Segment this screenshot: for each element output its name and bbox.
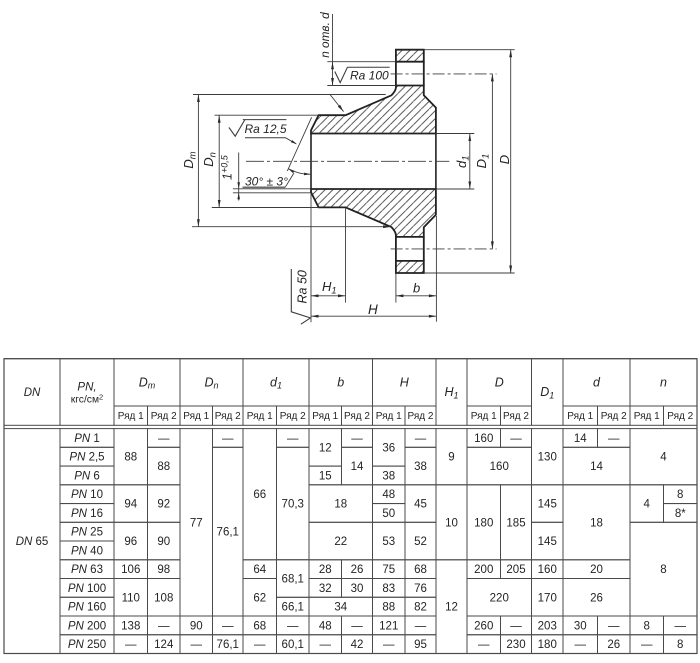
svg-text:кгс/см2: кгс/см2 [71, 393, 103, 406]
svg-text:26: 26 [351, 564, 364, 576]
svg-text:26: 26 [607, 639, 620, 651]
svg-text:D: D [495, 375, 504, 389]
svg-text:68: 68 [414, 564, 427, 576]
svg-text:—: — [510, 433, 522, 445]
svg-text:90: 90 [157, 536, 170, 548]
svg-text:—: — [675, 620, 687, 632]
svg-text:Ряд 2: Ряд 2 [280, 411, 306, 422]
svg-text:18: 18 [334, 499, 347, 511]
svg-text:8: 8 [677, 639, 683, 651]
svg-text:Ряд 2: Ряд 2 [344, 411, 370, 422]
svg-text:108: 108 [154, 592, 173, 604]
svg-text:PN 160: PN 160 [68, 602, 106, 614]
svg-text:52: 52 [414, 536, 427, 548]
svg-text:DN 65: DN 65 [16, 536, 49, 548]
svg-text:—: — [222, 620, 234, 632]
svg-text:10: 10 [445, 517, 458, 529]
svg-text:—: — [478, 639, 490, 651]
svg-text:—: — [608, 620, 620, 632]
svg-text:36: 36 [382, 442, 395, 454]
svg-text:121: 121 [379, 620, 398, 632]
svg-text:Ряд 1: Ряд 1 [183, 411, 209, 422]
svg-text:—: — [415, 620, 427, 632]
svg-text:14: 14 [574, 433, 587, 445]
svg-text:Ряд 2: Ряд 2 [408, 411, 434, 422]
svg-text:PN 6: PN 6 [74, 471, 100, 483]
svg-text:160: 160 [538, 564, 557, 576]
svg-text:66,1: 66,1 [282, 602, 304, 614]
svg-text:8*: 8* [675, 508, 686, 520]
svg-text:48: 48 [319, 620, 332, 632]
svg-text:n отв. d: n отв. d [318, 12, 332, 58]
svg-text:38: 38 [382, 470, 395, 482]
svg-text:PN 40: PN 40 [71, 545, 103, 557]
svg-text:220: 220 [490, 592, 509, 604]
svg-text:—: — [158, 620, 170, 632]
svg-text:145: 145 [538, 536, 557, 548]
svg-text:96: 96 [124, 536, 137, 548]
svg-text:180: 180 [538, 639, 557, 651]
svg-text:160: 160 [490, 461, 509, 473]
svg-text:66: 66 [253, 489, 266, 501]
svg-text:D: D [497, 155, 512, 164]
svg-text:76: 76 [414, 583, 427, 595]
svg-text:DN: DN [24, 387, 41, 399]
svg-text:PN 10: PN 10 [71, 489, 103, 501]
svg-text:—: — [608, 433, 620, 445]
svg-text:170: 170 [538, 592, 557, 604]
svg-text:12: 12 [319, 442, 332, 454]
svg-text:70,3: 70,3 [282, 499, 304, 511]
svg-text:—: — [383, 639, 395, 651]
svg-text:200: 200 [474, 564, 493, 576]
svg-text:d: d [593, 375, 601, 389]
svg-text:48: 48 [382, 489, 395, 501]
svg-text:22: 22 [334, 536, 347, 548]
svg-text:—: — [125, 639, 137, 651]
svg-text:26: 26 [590, 592, 603, 604]
svg-text:64: 64 [253, 564, 266, 576]
svg-text:83: 83 [382, 583, 395, 595]
svg-text:9: 9 [448, 452, 454, 464]
svg-text:88: 88 [157, 461, 170, 473]
svg-text:75: 75 [382, 564, 395, 576]
svg-text:145: 145 [538, 499, 557, 511]
svg-text:42: 42 [351, 639, 364, 651]
svg-text:Ra 12,5: Ra 12,5 [245, 122, 287, 136]
svg-text:8: 8 [644, 620, 650, 632]
svg-text:PN 63: PN 63 [71, 564, 103, 576]
svg-text:—: — [415, 433, 427, 445]
svg-text:68: 68 [253, 620, 266, 632]
svg-text:—: — [254, 639, 266, 651]
svg-text:4: 4 [660, 452, 667, 464]
svg-text:60,1: 60,1 [282, 639, 304, 651]
svg-text:Ряд 1: Ряд 1 [634, 411, 660, 422]
svg-text:b: b [413, 281, 420, 296]
svg-text:8: 8 [660, 564, 666, 576]
svg-text:50: 50 [382, 508, 395, 520]
svg-text:180: 180 [474, 517, 493, 529]
svg-text:38: 38 [414, 461, 427, 473]
svg-text:—: — [641, 639, 653, 651]
svg-text:94: 94 [124, 499, 137, 511]
svg-text:14: 14 [590, 461, 603, 473]
svg-text:92: 92 [157, 499, 170, 511]
svg-text:PN 100: PN 100 [68, 583, 106, 595]
svg-text:n: n [660, 375, 667, 389]
svg-text:Ряд 1: Ряд 1 [312, 411, 338, 422]
svg-text:8: 8 [677, 489, 683, 501]
svg-text:Ряд 2: Ряд 2 [601, 411, 627, 422]
svg-text:30: 30 [574, 620, 587, 632]
svg-text:Ra 50: Ra 50 [296, 270, 310, 303]
svg-text:PN 16: PN 16 [71, 508, 103, 520]
svg-text:76,1: 76,1 [217, 527, 239, 539]
svg-text:—: — [191, 639, 203, 651]
svg-text:18: 18 [590, 517, 603, 529]
svg-text:—: — [320, 639, 332, 651]
svg-text:b: b [337, 375, 344, 389]
svg-text:Ряд 1: Ряд 1 [567, 411, 593, 422]
svg-text:20: 20 [590, 564, 603, 576]
svg-text:PN 250: PN 250 [68, 639, 106, 651]
svg-text:62: 62 [253, 592, 266, 604]
svg-text:PN 25: PN 25 [71, 527, 103, 539]
svg-text:14: 14 [351, 461, 364, 473]
svg-text:30° ± 3°: 30° ± 3° [245, 175, 288, 189]
svg-text:—: — [222, 433, 234, 445]
svg-text:28: 28 [319, 564, 332, 576]
svg-text:Ra 100: Ra 100 [350, 68, 389, 82]
svg-text:30: 30 [351, 583, 364, 595]
svg-text:110: 110 [122, 592, 140, 604]
svg-text:90: 90 [190, 620, 203, 632]
svg-text:—: — [351, 620, 363, 632]
svg-text:H: H [400, 375, 410, 389]
svg-text:Ряд 1: Ряд 1 [118, 411, 144, 422]
svg-text:—: — [287, 433, 299, 445]
svg-text:4: 4 [644, 499, 651, 511]
svg-text:—: — [510, 620, 522, 632]
svg-text:88: 88 [124, 452, 137, 464]
svg-text:205: 205 [506, 564, 525, 576]
svg-text:98: 98 [157, 564, 170, 576]
svg-text:PN 200: PN 200 [68, 620, 106, 632]
svg-text:160: 160 [474, 433, 493, 445]
svg-text:Ряд 2: Ряд 2 [151, 411, 177, 422]
svg-text:15: 15 [319, 470, 332, 482]
svg-text:185: 185 [506, 517, 525, 529]
svg-text:138: 138 [121, 620, 140, 632]
svg-text:95: 95 [414, 639, 427, 651]
svg-text:203: 203 [538, 620, 557, 632]
svg-text:76,1: 76,1 [217, 639, 239, 651]
svg-text:Ряд 1: Ряд 1 [376, 411, 402, 422]
svg-text:Ряд 2: Ряд 2 [667, 411, 693, 422]
svg-text:260: 260 [474, 620, 493, 632]
svg-text:PN 1: PN 1 [74, 433, 100, 445]
svg-text:H: H [368, 302, 378, 317]
svg-text:45: 45 [414, 499, 427, 511]
svg-text:68,1: 68,1 [282, 574, 304, 586]
svg-text:Ряд 2: Ряд 2 [215, 411, 241, 422]
svg-text:—: — [158, 433, 170, 445]
svg-text:32: 32 [319, 583, 332, 595]
svg-text:Ряд 1: Ряд 1 [247, 411, 273, 422]
svg-text:PN 2,5: PN 2,5 [69, 452, 104, 464]
svg-text:—: — [351, 433, 363, 445]
svg-text:124: 124 [154, 639, 174, 651]
svg-text:88: 88 [382, 602, 395, 614]
svg-text:—: — [287, 620, 299, 632]
svg-text:34: 34 [334, 602, 347, 614]
svg-text:Ряд 1: Ряд 1 [471, 411, 497, 422]
svg-text:130: 130 [538, 452, 557, 464]
svg-text:53: 53 [382, 536, 395, 548]
svg-text:Ряд 2: Ряд 2 [503, 411, 529, 422]
svg-text:82: 82 [414, 602, 427, 614]
svg-text:—: — [575, 639, 587, 651]
svg-text:PN,: PN, [77, 382, 96, 394]
svg-text:12: 12 [445, 602, 458, 614]
svg-text:106: 106 [121, 564, 140, 576]
svg-text:77: 77 [190, 517, 203, 529]
svg-text:230: 230 [506, 639, 525, 651]
